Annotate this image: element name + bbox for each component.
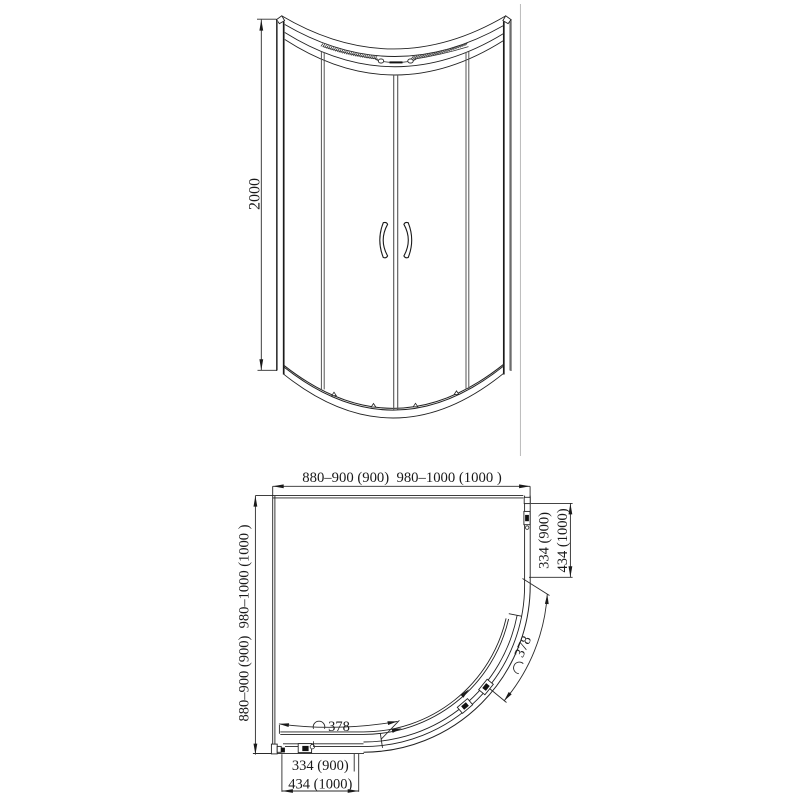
svg-text:434 (1000): 434 (1000) — [288, 777, 352, 793]
svg-text:2000: 2000 — [247, 178, 264, 210]
svg-text:378: 378 — [328, 719, 350, 735]
svg-text:880–900 (900) 980–1000 (1000: 880–900 (900) 980–1000 (1000 ) — [302, 470, 502, 486]
svg-text:334 (900): 334 (900) — [536, 512, 552, 569]
svg-text:334 (900): 334 (900) — [292, 758, 349, 774]
svg-text:880–900 (900) 980–1000 (1000: 880–900 (900) 980–1000 (1000 ) — [237, 524, 253, 721]
svg-text:434 (1000): 434 (1000) — [555, 508, 571, 572]
